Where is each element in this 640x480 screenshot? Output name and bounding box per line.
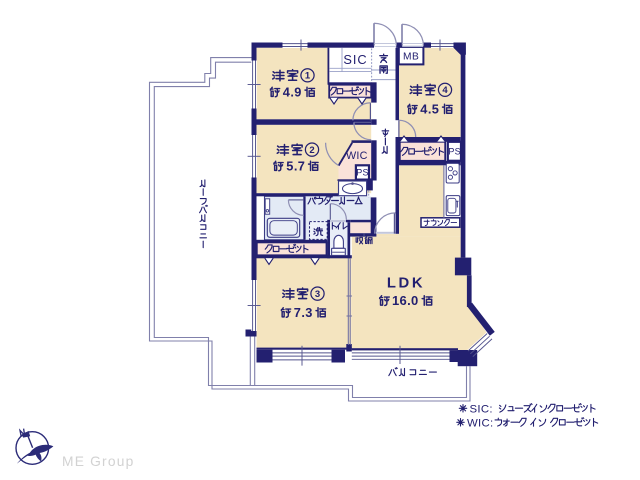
svg-text:4.5: 4.5: [420, 101, 439, 116]
svg-text:WIC:: WIC:: [467, 417, 494, 429]
svg-text:3: 3: [315, 289, 320, 300]
svg-text:ME Group: ME Group: [62, 454, 134, 469]
svg-text:PS: PS: [448, 147, 460, 157]
svg-text:SIC: SIC: [343, 52, 367, 67]
svg-text:4: 4: [442, 85, 448, 96]
svg-text:PS: PS: [356, 168, 369, 178]
svg-text:SIC:: SIC:: [470, 403, 493, 415]
svg-text:7.3: 7.3: [294, 305, 313, 320]
svg-text:MB: MB: [403, 51, 419, 62]
svg-text:16.0: 16.0: [392, 293, 419, 308]
svg-text:1: 1: [305, 71, 311, 82]
svg-text:2: 2: [309, 145, 314, 156]
svg-text:LDK: LDK: [387, 276, 425, 292]
svg-text:4.9: 4.9: [283, 84, 302, 99]
svg-text:5.7: 5.7: [286, 158, 305, 173]
svg-text:WIC: WIC: [346, 150, 368, 162]
